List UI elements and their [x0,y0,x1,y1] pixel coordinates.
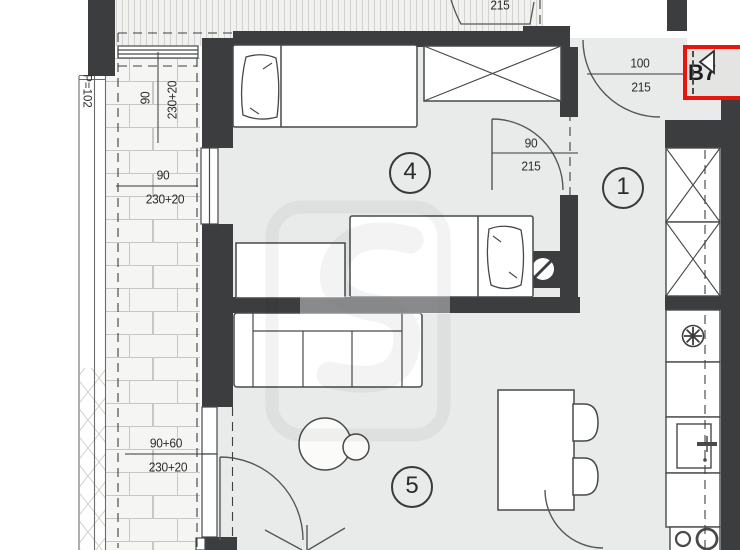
dim-neighbor-partial: 215 [490,0,509,12]
wardrobe [424,46,561,101]
dim-balcony-door-lower-width: 90+60 [150,437,182,450]
dim-bedroom-door-width: 90 [525,137,538,150]
dim-balcony-door-upper-height: 230+20 [146,193,185,206]
dim-entrance-height: 215 [631,81,650,94]
room-number: 1 [616,173,629,200]
entry-dashed-line [692,51,694,94]
unit-badge[interactable]: B7 [683,45,740,100]
single-bed-1 [233,45,417,127]
cooktop [670,527,720,550]
dim-entrance-width: 100 [630,57,649,70]
dim-balcony-door-lower-height: 230+20 [149,461,188,474]
watermark-wall-overlay [300,296,450,314]
plan-drawing [0,0,740,550]
balcony-railing [79,58,106,550]
dining-chair [573,458,598,495]
room-label-living-room: 5 [391,466,433,508]
dim-balcony-window-height: 230+20 [166,81,179,120]
balcony-area-label: P=102 [81,74,92,108]
room-number: 5 [405,472,418,499]
balcony-floor [105,58,200,550]
shaft-symbol [532,258,554,280]
room-label-bedroom: 4 [389,152,431,194]
dining-chair [573,404,598,441]
dining-table [498,390,574,510]
room-number: 4 [403,158,416,185]
dim-balcony-door-upper-width: 90 [157,169,170,182]
fan-symbol [683,326,704,347]
dim-bedroom-door-height: 215 [521,160,540,173]
floor-plan: B7 1 4 5 100 215 90 215 90 230+20 90 230… [0,0,740,550]
room-label-hallway: 1 [602,167,644,209]
left-triangle-icon [698,49,716,75]
dim-balcony-window-width: 90 [139,92,152,105]
